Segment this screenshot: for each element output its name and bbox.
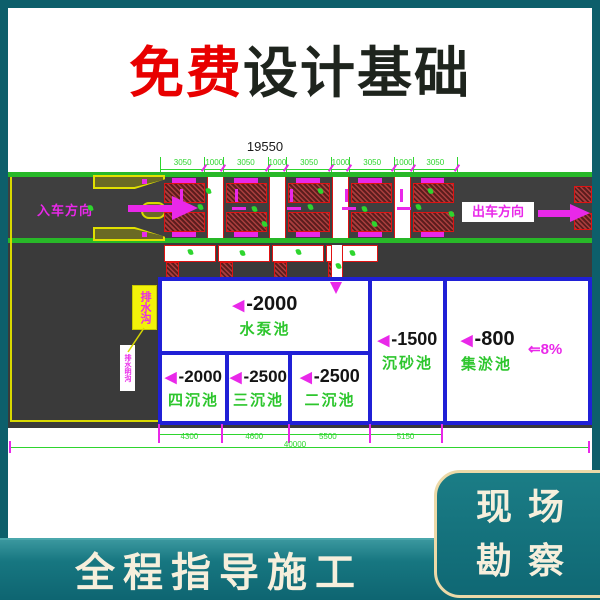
exit-direction-label: 出车方向 bbox=[462, 202, 534, 222]
dim-segment: 4300 bbox=[158, 424, 221, 441]
flow-arrow-icon bbox=[400, 189, 403, 202]
flow-arrow-icon bbox=[287, 207, 301, 210]
exit-arrow-head-icon bbox=[570, 204, 590, 222]
dim-segment: 4600 bbox=[221, 424, 288, 441]
callout-note: 排水明沟 bbox=[120, 345, 135, 391]
flow-arrow-down-icon bbox=[330, 282, 342, 294]
pool-depth: -2500 bbox=[244, 367, 287, 386]
bottom-dimension-bar: 4300 4600 5500 5150 bbox=[158, 424, 443, 441]
dim-tick bbox=[441, 424, 443, 443]
title-rest: 设计基础 bbox=[243, 42, 471, 104]
wash-bay bbox=[224, 177, 269, 238]
lane-island-bottom bbox=[93, 227, 165, 241]
top-dimension-total: 19550 bbox=[215, 139, 315, 154]
entry-direction-label: 入车方向 bbox=[37, 200, 93, 219]
flow-arrow-icon bbox=[180, 189, 183, 202]
flow-arrow-icon bbox=[290, 189, 293, 202]
depth-marker-icon: ◀ bbox=[165, 369, 177, 386]
boundary-line-bottom bbox=[10, 420, 158, 422]
pool-grit: ◀-1500 沉砂池 bbox=[368, 277, 447, 425]
pool-name: 二沉池 bbox=[304, 389, 355, 410]
depth-marker-icon: ◀ bbox=[233, 297, 245, 314]
title-highlight: 免费 bbox=[129, 42, 243, 104]
page-title: 免费设计基础 bbox=[0, 42, 600, 105]
overall-dimension-total: 40000 bbox=[255, 440, 335, 449]
pool-depth: -2000 bbox=[179, 367, 222, 386]
pool-silt-collection: ◀-800 集淤池 bbox=[443, 277, 592, 425]
footer-banner-text: 全程指导施工 bbox=[0, 540, 430, 598]
pool-depth: -800 bbox=[475, 328, 515, 350]
pool-depth: -2000 bbox=[246, 293, 297, 315]
flow-arrow-icon bbox=[342, 207, 356, 210]
dim-tick bbox=[9, 441, 11, 453]
slope-label: ⇐8% bbox=[528, 340, 562, 358]
pool-name: 集淤池 bbox=[461, 353, 512, 374]
dim-segment: 5500 bbox=[288, 424, 368, 441]
exit-arrow bbox=[538, 210, 570, 217]
callout-box: 排水沟 bbox=[132, 285, 157, 330]
badge-line2: 勘察 bbox=[460, 534, 580, 588]
lane-island-top bbox=[93, 175, 165, 189]
entry-arrow bbox=[128, 205, 172, 212]
depth-marker-icon: ◀ bbox=[461, 332, 473, 349]
entry-arrow-head-icon bbox=[172, 196, 198, 220]
flow-arrow-icon bbox=[345, 189, 348, 202]
depth-marker-icon: ◀ bbox=[230, 369, 242, 386]
site-survey-badge: 现场 勘察 bbox=[434, 470, 600, 598]
pool-depth: -2500 bbox=[314, 366, 360, 386]
cad-mark bbox=[142, 232, 147, 237]
pool-name: 水泵池 bbox=[239, 318, 290, 339]
dim-tick bbox=[158, 424, 160, 443]
flow-arrow-icon bbox=[397, 207, 411, 210]
dim-tick bbox=[588, 441, 590, 453]
dim-tick bbox=[369, 424, 371, 443]
pool-second-settling: ◀-2500 二沉池 bbox=[288, 351, 372, 425]
cad-mark bbox=[142, 179, 147, 184]
pool-name: 三沉池 bbox=[233, 389, 284, 410]
depth-marker-icon: ◀ bbox=[300, 369, 312, 386]
drain-channel bbox=[269, 177, 286, 238]
dim-segment: 5150 bbox=[368, 424, 443, 441]
pool-fourth-settling: ◀-2000 四沉池 bbox=[158, 351, 229, 425]
wash-bay bbox=[574, 186, 592, 203]
depth-marker-icon: ◀ bbox=[378, 332, 390, 349]
boundary-line-left bbox=[10, 177, 12, 421]
dim-tick bbox=[221, 424, 223, 443]
pool-name: 四沉池 bbox=[168, 389, 219, 410]
badge-line1: 现场 bbox=[460, 480, 580, 534]
pool-name: 沉砂池 bbox=[382, 352, 433, 373]
flow-arrow-icon bbox=[232, 207, 246, 210]
flow-arrow-icon bbox=[235, 189, 238, 202]
pool-depth: -1500 bbox=[391, 329, 437, 349]
drain-channel bbox=[207, 177, 224, 238]
pool-third-settling: ◀-2500 三沉池 bbox=[225, 351, 292, 425]
